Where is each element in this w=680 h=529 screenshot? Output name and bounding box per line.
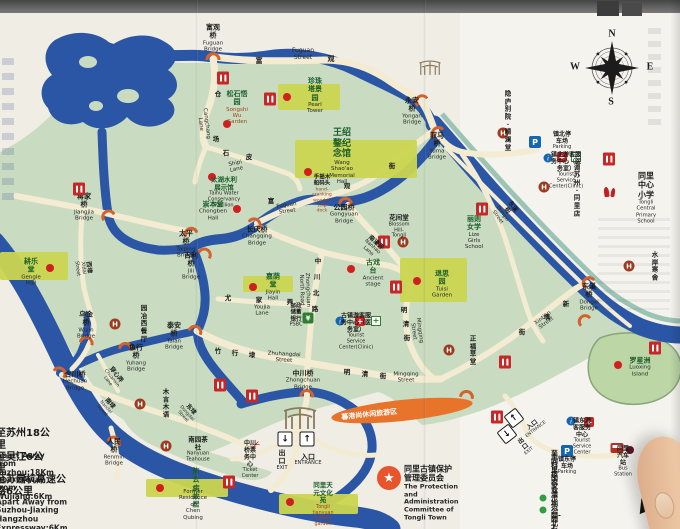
char-shi-zh: 石 <box>223 150 230 158</box>
pearl-tower-zh: 珍珠塔景园 <box>307 77 323 102</box>
wujin-bridge-en: Wujin Bridge <box>77 327 95 340</box>
char-zhong-text: 中 <box>315 258 322 266</box>
renmin-bridge-en: Renmin Bridge <box>104 454 125 467</box>
char-ming-2-zh: 明 <box>344 369 351 377</box>
luoxing-island-en: Luoxing Island <box>629 365 650 378</box>
renmin-bridge-zh: 人民桥 <box>104 437 125 454</box>
arc-icon <box>99 207 116 221</box>
dot-icon <box>249 283 257 291</box>
dot-icon <box>614 361 622 369</box>
fuguan-bridge-en: Fuguan Bridge <box>203 40 223 53</box>
dongxi-bridge-text: 东溪桥Dongxi Bridge <box>579 282 598 311</box>
taian-bridge-en: Taian Bridge <box>165 338 183 351</box>
char-jia-text: 家 <box>256 297 263 305</box>
taihu-pavilion-zh: 太湖水利展示馆 <box>208 177 240 192</box>
jiayin-hall-text: 嘉荫堂Jiayin Hall <box>266 272 281 301</box>
yinlu-hotel-zh: 隐庐别院·晴澜堂 <box>505 90 512 151</box>
jiangjia-bridge-en: Jiangjia Bridge <box>74 209 94 222</box>
char-zhu-text: 竹 <box>215 348 222 356</box>
zhongchuan-bridge-zh: 中川桥 <box>286 369 320 377</box>
wujin-bridge-text: 乌金桥Wujin Bridge <box>77 310 95 339</box>
char-guan-2-zh: 观 <box>344 183 351 191</box>
jiayin-hall-en: Jiayin Hall <box>266 289 281 302</box>
char-dai-zh: 埭 <box>249 352 256 360</box>
char-cang-zh: 仓 <box>215 91 222 99</box>
songshi-wu-garden-en: Songshi Wu Garden <box>226 107 248 126</box>
shipi-lane-text: Shipi Lane <box>228 159 244 174</box>
wangshaoao-memorial-highlight-box <box>295 140 417 178</box>
gongyuan-bridge-text: 公园桥Gongyuan Bridge <box>330 203 358 224</box>
dongxi-bridge-zh: 东溪桥 <box>579 282 598 299</box>
char-ming-1-zh: 明 <box>401 307 408 315</box>
zhuhangdai-street-en: Zhuhangdai Street <box>267 351 301 366</box>
zhengfu-caotang-hotel-text: 正福草堂 <box>470 336 477 367</box>
central-tourist-center-text: 古镇游客服务中心（医务室）Tourist Service Center(Clin… <box>339 313 373 352</box>
dongxi-street-text: 东溪街Dongxi Street <box>489 197 520 226</box>
lize-girls-school-en: Lize Girls School <box>465 232 483 251</box>
gengle-hall-en: Gengle Hall <box>21 274 41 287</box>
chongben-hall-zh: 崇本堂 <box>199 200 227 208</box>
char-nong-text: 弄 <box>287 299 294 307</box>
youjia-lane-text: Youjia Lane <box>254 305 270 318</box>
chuanxin-lane-text: 穿心弄Chuanxin Lane <box>99 364 126 392</box>
zhongchuan-bridge-en: Zhongchuan Bridge <box>286 378 320 391</box>
pearl-tower-en: Pearl Tower <box>307 102 323 115</box>
mingqing-street-h-text: Mingqing Street <box>393 372 418 385</box>
char-fu-1-text: 富 <box>256 57 263 65</box>
luoxing-island-text: 罗星洲Luoxing Island <box>629 356 650 377</box>
char-guan-1-text: 观 <box>328 55 335 63</box>
yongan-bridge-en: Yongan Bridge <box>402 113 422 126</box>
h-icon: H <box>110 319 121 330</box>
jili-bridge-zh: 吉利桥 <box>182 251 200 268</box>
char-qing-2-text: 清 <box>362 371 369 379</box>
char-hang-zh: 行 <box>232 350 239 358</box>
char-xin-zh: 新 <box>563 301 570 309</box>
changqing-bridge-text: 长庆桥Changqing Bridge <box>242 225 272 246</box>
luoxing-island-zh: 罗星洲 <box>629 356 650 364</box>
char-qing-2-zh: 清 <box>362 371 369 379</box>
ancient-stage-zh: 古戏台 <box>363 258 384 275</box>
wc-icon <box>649 342 661 355</box>
jili-bridge-text: 吉利桥Jili Bridge <box>182 251 200 280</box>
wc-icon <box>214 379 226 392</box>
char-qing-1-text: 清 <box>403 321 410 329</box>
dot-icon <box>304 168 312 176</box>
char-jie-5-text: 街 <box>519 329 526 337</box>
chen-qubing-residence-en-text: Former Residence of Chen Qubing <box>179 489 207 521</box>
p-icon: P <box>529 136 541 148</box>
wc-icon <box>476 203 488 216</box>
char-jie-3-text: 街 <box>404 335 411 343</box>
muyan-muyu-inn-text: 木言木语 <box>163 389 170 420</box>
yuanye-restaurant-zh: 园冶西餐厅 <box>141 305 148 343</box>
muyan-muyu-inn-zh: 木言木语 <box>163 389 170 420</box>
dot-icon <box>156 484 164 492</box>
arc-icon <box>188 323 205 336</box>
east-exit-label-text: 出口EXIT <box>515 435 535 456</box>
tongli-primary-school-en: Tongli Central Primary School <box>636 200 656 225</box>
photographed-tongli-map: N E S W 富观桥Fuguan Bridge永安桥Yongan Bridge… <box>0 0 680 529</box>
bus-station-zh: 同里汽车站 <box>614 445 632 466</box>
committee-text: 同里古镇保护管理委员会The Protection and Administra… <box>404 464 459 521</box>
entrance-label-text: 入口ENTRANCE <box>294 453 321 467</box>
h-icon: H <box>539 182 550 193</box>
tianyuan-culture-garden-text: 同里天元文化苑Tongli tianyuan culture garden <box>312 482 333 528</box>
psbc-bank-en: PSBC <box>289 323 302 329</box>
char-chang-text: 场 <box>213 136 220 144</box>
dot-icon <box>413 277 421 285</box>
yuhang-bridge-text: 鱼行桥Yuhang Bridge <box>126 343 146 372</box>
char-guan-2-text: 观 <box>344 183 351 191</box>
char-lu-text: 路 <box>312 306 319 314</box>
star-icon: ★ <box>377 466 401 490</box>
char-fu-2-zh: 富 <box>268 198 275 206</box>
bullet-icon <box>540 507 547 514</box>
wc-icon <box>499 356 511 369</box>
gengle-hall-zh: 耕乐堂 <box>21 257 41 274</box>
psbc-icon: ¥ <box>303 313 314 324</box>
char-jie-4-text: 街 <box>380 373 387 381</box>
agri-park-note-text: 至科技农业示范园-北联村5公里 <box>551 453 561 529</box>
tianyuan-culture-garden-zh: 同里天元文化苑 <box>312 482 333 505</box>
gate2-icon <box>418 57 442 77</box>
wangshaoao-memorial-zh: 王绍鏊纪念馆 <box>329 128 355 160</box>
char-zhu-zh: 竹 <box>215 348 222 356</box>
char-jie-3-zh: 街 <box>404 335 411 343</box>
blossom-hill-hotel-en: Blossom Hill-Tongli <box>388 222 409 240</box>
zhengfu-caotang-hotel-zh: 正福草堂 <box>470 336 477 367</box>
chongben-hall-en: Chongben Hall <box>199 209 227 222</box>
tongli-primary-school-text: 同里中心小学Tongli Central Primary School <box>636 172 656 225</box>
dist-expressway-text: 至苏嘉杭高速公路6公里Apart Away from Suzhou-Jiaxin… <box>0 475 68 529</box>
taiping-bridge-zh: 太平桥 <box>176 229 195 246</box>
yuma-bridge-zh: 驭马桥 <box>428 131 446 148</box>
mingqing-street-h-en: Mingqing Street <box>393 372 418 385</box>
central-tourist-center-zh: 古镇游客服务中心（医务室） <box>339 313 373 334</box>
wc-icon <box>390 281 402 294</box>
xidai-street-text: 西埭Xidai Street <box>73 259 94 276</box>
tianyuan-culture-garden-en: Tongli tianyuan culture garden <box>312 505 333 528</box>
nanyuan-teahouse-text: 南园茶社Nanyuan Teahouse <box>186 436 209 463</box>
wooden-ship-dock-text: 手摇木船码头hand-cranking wooden ship dock <box>312 174 332 213</box>
char-hang-text: 行 <box>232 350 239 358</box>
hechuan-bridge-text: 合川桥Hechuan Bridge <box>63 370 87 391</box>
wc-icon <box>73 183 85 196</box>
dot-icon <box>46 264 54 272</box>
nanyuan-teahouse-en: Nanyuan Teahouse <box>186 452 209 464</box>
char-cang-text: 仓 <box>215 91 222 99</box>
lize-girls-school-text: 丽则女学Lize Girls School <box>465 215 483 251</box>
dot-icon <box>286 498 294 506</box>
yuhang-bridge-zh: 鱼行桥 <box>126 343 146 360</box>
char-ming-2-text: 明 <box>344 369 351 377</box>
exitu-icon: ↑ <box>300 432 315 447</box>
chen-qubing-residence-en-en: Former Residence of Chen Qubing <box>179 489 207 521</box>
char-qing-1-zh: 清 <box>403 321 410 329</box>
changqing-bridge-en: Changqing Bridge <box>242 234 272 247</box>
char-pi-text: 皮 <box>246 154 253 162</box>
shuian-hanshe-hotel-text: 水岸寒舍 <box>652 252 659 283</box>
wooden-ship-dock-zh: 手摇木船码头 <box>312 174 332 187</box>
arrowhead-icon <box>640 498 657 515</box>
songshi-wu-garden-zh: 松石悟园 <box>226 90 248 107</box>
renmin-bridge-text: 人民桥Renmin Bridge <box>104 437 125 466</box>
arc-icon <box>206 52 221 60</box>
nanyuan-teahouse-zh: 南园茶社 <box>186 436 209 451</box>
hechuan-bridge-zh: 合川桥 <box>63 370 87 378</box>
shuian-hanshe-hotel-zh: 水岸寒舍 <box>652 252 659 283</box>
wangshaoao-memorial-en: Wang Shao'ao Memorial Hall <box>329 160 355 186</box>
tuisi-garden-text: 退思园Tuisi Garden <box>432 269 452 298</box>
char-zhong-zh: 中 <box>315 258 322 266</box>
wc-icon <box>246 390 258 403</box>
fuguan-street-top-text: Fuguan Street <box>292 47 314 61</box>
east-tourist-center-zh: 镇东游客服务中心 <box>573 418 591 439</box>
ticket-center-zh: 中川桥票务中心 <box>242 440 259 468</box>
zhongchuan-north-road-en: Zhongchuan North Road <box>297 273 311 308</box>
yuhang-bridge-en: Yuhang Bridge <box>126 360 146 373</box>
north-parking-zh: 镇北停车场 <box>553 131 572 145</box>
fuguan-street-mid-en: Fuguan Street <box>276 201 298 217</box>
bullet-icon <box>540 495 547 502</box>
char-jie-2-zh: 街 <box>389 163 396 171</box>
taian-bridge-text: 泰安桥Taian Bridge <box>165 321 183 350</box>
wc-icon <box>223 476 235 489</box>
h-icon: H <box>135 399 146 410</box>
east-entrance-label-text: 入口ENTRANCE <box>521 415 548 440</box>
cangchang-lane-en: Cangchang Lane <box>195 108 212 140</box>
school-icon <box>602 186 618 198</box>
char-nong-zh: 弄 <box>287 299 294 307</box>
fuguan-bridge-zh: 富观桥 <box>203 23 223 40</box>
dot-icon <box>347 265 355 273</box>
gongyuan-bridge-zh: 公园桥 <box>330 203 358 211</box>
nandai-street-text: 南埭Nandai Street <box>94 395 118 419</box>
h-icon: H <box>444 345 455 356</box>
wc-icon <box>217 72 229 85</box>
wc-icon <box>264 93 276 106</box>
char-you-zh: 尤 <box>225 295 232 303</box>
dist-expressway-zh: 至苏嘉杭高速公路6公里 <box>0 475 68 499</box>
shipi-lane-en: Shipi Lane <box>228 159 244 174</box>
east-tourist-center-text: 镇东游客服务中心Tourist Service Center <box>573 418 591 457</box>
taian-bridge-zh: 泰安桥 <box>165 321 183 338</box>
chongben-hall-text: 崇本堂Chongben Hall <box>199 200 227 221</box>
dot-icon <box>283 93 291 101</box>
char-ming-1-text: 明 <box>401 307 408 315</box>
map-labels: 富观桥Fuguan Bridge永安桥Yongan Bridge驭马桥Yuma … <box>0 0 680 529</box>
char-bei-zh: 北 <box>313 290 320 298</box>
exitd-icon: ↓ <box>278 432 293 447</box>
char-chuan-text: 川 <box>314 274 321 282</box>
north-parking-text: 镇北停车场Parking <box>553 131 572 151</box>
lize-girls-school-zh: 丽则女学 <box>465 215 483 232</box>
char-fu-2-text: 富 <box>268 198 275 206</box>
char-jie-4-zh: 街 <box>380 373 387 381</box>
char-dai-text: 埭 <box>249 352 256 360</box>
h-icon: H <box>161 441 172 452</box>
arc-icon <box>198 245 215 259</box>
tuisi-garden-zh: 退思园 <box>432 269 452 286</box>
yuanye-restaurant-text: 园冶西餐厅 <box>141 305 148 343</box>
char-you-text: 尤 <box>225 295 232 303</box>
char-jia-zh: 家 <box>256 297 263 305</box>
bus-station-text: 同里汽车站Bus Station <box>614 445 632 478</box>
entrance-label-en: ENTRANCE <box>294 461 321 467</box>
char-shi-text: 石 <box>223 150 230 158</box>
central-tourist-center-en: Tourist Service Center(Clinic) <box>339 334 373 352</box>
wangshaoao-memorial-text: 王绍鏊纪念馆Wang Shao'ao Memorial Hall <box>329 128 355 186</box>
cangchang-lane-text: Cangchang Lane <box>195 108 212 140</box>
committee-zh: 同里古镇保护管理委员会 <box>404 464 459 483</box>
yongan-bridge-zh: 永安桥 <box>402 96 422 113</box>
yinlu-hotel-text: 隐庐别院·晴澜堂 <box>505 90 512 151</box>
char-bei-text: 北 <box>313 290 320 298</box>
h-icon: H <box>624 261 635 272</box>
exit-label-en: EXIT <box>276 465 287 471</box>
arc-icon <box>575 311 592 327</box>
north-parking-en: Parking <box>553 145 572 151</box>
tuisi-garden-en: Tuisi Garden <box>432 286 452 299</box>
zhongchuan-bridge-text: 中川桥Zhongchuan Bridge <box>286 369 320 390</box>
ticket-center-en: Ticket Center <box>242 468 259 480</box>
blossom-hill-hotel-text: 花间堂Blossom Hill-Tongli <box>388 214 409 239</box>
yuma-bridge-en: Yuma Bridge <box>428 148 446 161</box>
char-tian-zh: 填 <box>544 314 551 322</box>
char-lu-zh: 路 <box>312 306 319 314</box>
yongan-bridge-text: 永安桥Yongan Bridge <box>402 96 422 125</box>
exit-label-zh: 出口 <box>276 449 287 466</box>
char-jie-5-zh: 街 <box>519 329 526 337</box>
ancient-stage-en: Ancient stage <box>363 275 384 288</box>
char-pi-zh: 皮 <box>246 154 253 162</box>
fuguan-street-mid-text: Fuguan Street <box>276 201 298 217</box>
jili-bridge-en: Jili Bridge <box>182 268 200 281</box>
dist-suzhou-zh: 至苏州18公里 <box>0 428 54 452</box>
zhuhangdai-street-text: Zhuhangdai Street <box>267 351 301 366</box>
char-chang-zh: 场 <box>213 136 220 144</box>
dongdai-street-text: 东埭Dongdai Street <box>174 400 200 426</box>
wc-icon <box>491 411 503 424</box>
zhongchuan-north-road-text: Zhongchuan North Road <box>297 273 311 308</box>
gongyuan-bridge-en: Gongyuan Bridge <box>330 212 358 225</box>
north-tourist-center-text: 镇北游客服务中心（医务室）Tourist Service Center(Clin… <box>549 152 583 191</box>
char-guan-1-zh: 观 <box>328 55 335 63</box>
jiangjia-bridge-text: 蒋家桥Jiangjia Bridge <box>74 192 94 221</box>
tongli-primary-school-zh: 同里中心小学 <box>636 172 656 200</box>
hechuan-bridge-en: Hechuan Bridge <box>63 379 87 392</box>
char-fu-1-zh: 富 <box>256 57 263 65</box>
xidai-street-en: Xidai Street <box>73 260 87 277</box>
jiayin-hall-zh: 嘉荫堂 <box>266 272 281 289</box>
north-tourist-center-en: Tourist Service Center(Clinic) <box>549 173 583 191</box>
fuguan-bridge-text: 富观桥Fuguan Bridge <box>203 23 223 52</box>
pearl-tower-text: 珍珠塔景园Pearl Tower <box>307 77 323 115</box>
dist-wujiang-zh: 至吴江6公里 <box>0 452 52 476</box>
bus-station-en: Bus Station <box>614 467 632 479</box>
agri-park-note-zh: 至科技农业示范园-北联村5公里 <box>551 453 561 529</box>
ancient-stage-text: 古戏台Ancient stage <box>363 258 384 287</box>
songshi-wu-garden-text: 松石悟园Songshi Wu Garden <box>226 90 248 126</box>
gate-icon <box>282 402 318 432</box>
east-tourist-center-en: Tourist Service Center <box>573 439 591 457</box>
dist-expressway-en: Apart Away from Suzhou-Jiaxing Hangzhou … <box>0 498 68 529</box>
char-xin-text: 新 <box>563 301 570 309</box>
char-tian-text: 填 <box>544 314 551 322</box>
wujin-bridge-zh: 乌金桥 <box>77 310 95 327</box>
dongxi-bridge-en: Dongxi Bridge <box>579 299 598 312</box>
youjia-lane-en: Youjia Lane <box>254 305 270 318</box>
yuma-bridge-text: 驭马桥Yuma Bridge <box>428 131 446 160</box>
exit-label-text: 出口EXIT <box>276 449 287 471</box>
leisure-zone: 暮港尚休闲旅游区 <box>330 392 473 428</box>
ticket-center-text: 中川桥票务中心Ticket Center <box>242 440 259 480</box>
wooden-ship-dock-en: hand-cranking wooden ship dock <box>312 187 332 213</box>
changqing-bridge-zh: 长庆桥 <box>242 225 272 233</box>
fuguan-street-top-en: Fuguan Street <box>292 47 314 61</box>
north-tourist-center-zh: 镇北游客服务中心（医务室） <box>549 152 583 173</box>
char-chuan-zh: 川 <box>314 274 321 282</box>
committee-en: The Protection and Administration Commit… <box>404 483 459 521</box>
gengle-hall-text: 耕乐堂Gengle Hall <box>21 257 41 286</box>
wc-icon <box>603 153 615 166</box>
char-jie-2-text: 街 <box>389 163 396 171</box>
dot-icon <box>233 205 241 213</box>
